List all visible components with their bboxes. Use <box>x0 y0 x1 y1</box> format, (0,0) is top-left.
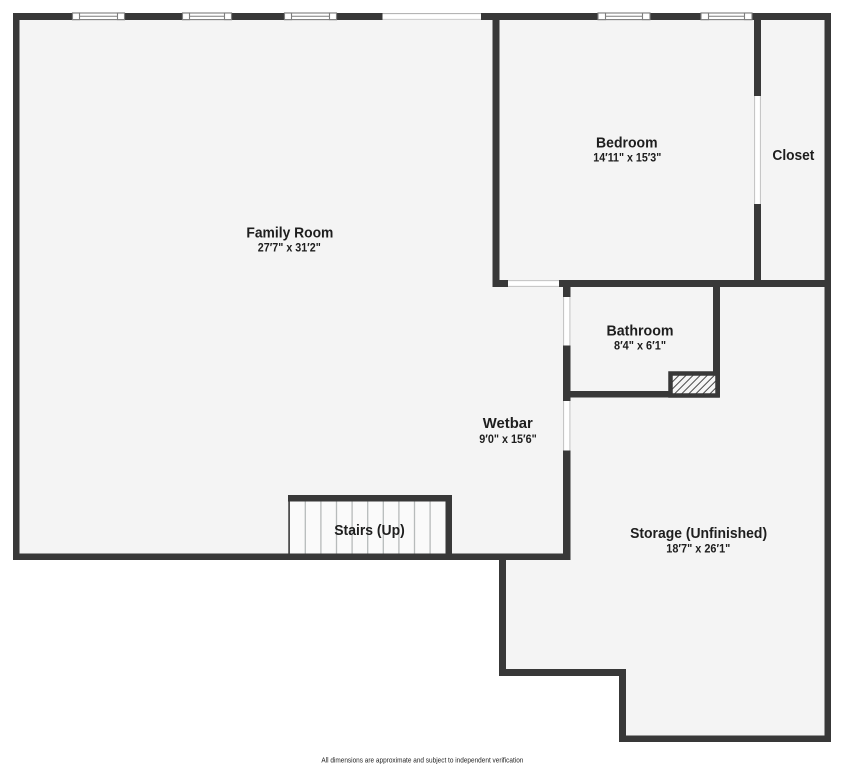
svg-text:Wetbar: Wetbar <box>483 415 533 432</box>
svg-text:9′0" x 15′6": 9′0" x 15′6" <box>479 432 537 446</box>
svg-text:14′11" x 15′3": 14′11" x 15′3" <box>593 151 661 165</box>
svg-text:27′7" x 31′2": 27′7" x 31′2" <box>258 241 321 255</box>
svg-text:Closet: Closet <box>772 147 814 164</box>
svg-text:All dimensions are approximate: All dimensions are approximate and subje… <box>321 756 523 765</box>
svg-text:8′4" x 6′1": 8′4" x 6′1" <box>614 339 666 353</box>
svg-text:Stairs (Up): Stairs (Up) <box>334 522 405 539</box>
svg-text:Family Room: Family Room <box>246 225 333 242</box>
svg-text:Storage (Unfinished): Storage (Unfinished) <box>630 525 767 542</box>
svg-text:18′7" x 26′1": 18′7" x 26′1" <box>666 542 730 556</box>
svg-text:Bathroom: Bathroom <box>607 322 674 339</box>
svg-text:Bedroom: Bedroom <box>596 135 658 152</box>
